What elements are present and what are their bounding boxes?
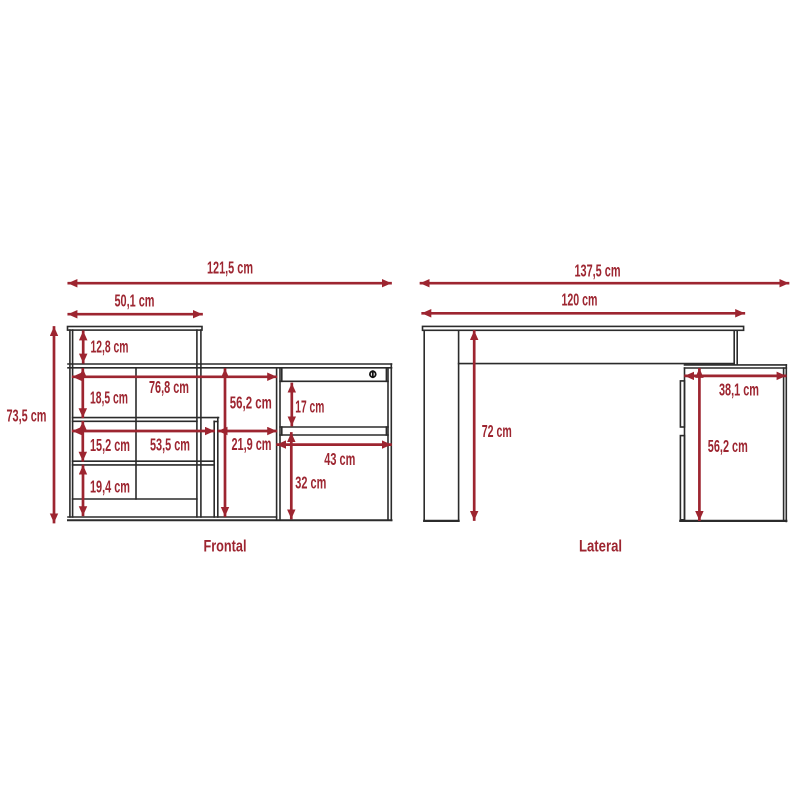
svg-text:12,8 cm: 12,8 cm <box>91 337 129 357</box>
svg-text:Lateral: Lateral <box>579 537 622 555</box>
svg-text:18,5 cm: 18,5 cm <box>90 388 128 408</box>
svg-text:73,5 cm: 73,5 cm <box>7 406 47 426</box>
svg-text:38,1 cm: 38,1 cm <box>719 380 759 400</box>
svg-text:Frontal: Frontal <box>204 538 247 556</box>
svg-text:56,2 cm: 56,2 cm <box>708 436 748 456</box>
svg-text:121,5 cm: 121,5 cm <box>207 258 253 278</box>
svg-text:17 cm: 17 cm <box>295 396 324 416</box>
svg-text:43 cm: 43 cm <box>324 449 355 469</box>
svg-text:56,2 cm: 56,2 cm <box>230 393 272 413</box>
svg-text:32 cm: 32 cm <box>295 472 326 492</box>
svg-text:120 cm: 120 cm <box>562 289 598 309</box>
svg-text:72 cm: 72 cm <box>482 421 512 441</box>
svg-text:19,4 cm: 19,4 cm <box>90 476 130 496</box>
svg-text:50,1 cm: 50,1 cm <box>115 291 155 311</box>
svg-text:53,5 cm: 53,5 cm <box>150 435 190 455</box>
svg-text:137,5 cm: 137,5 cm <box>575 260 621 280</box>
svg-text:21,9 cm: 21,9 cm <box>232 434 272 454</box>
svg-text:76,8 cm: 76,8 cm <box>149 377 189 397</box>
svg-text:15,2 cm: 15,2 cm <box>90 435 130 455</box>
